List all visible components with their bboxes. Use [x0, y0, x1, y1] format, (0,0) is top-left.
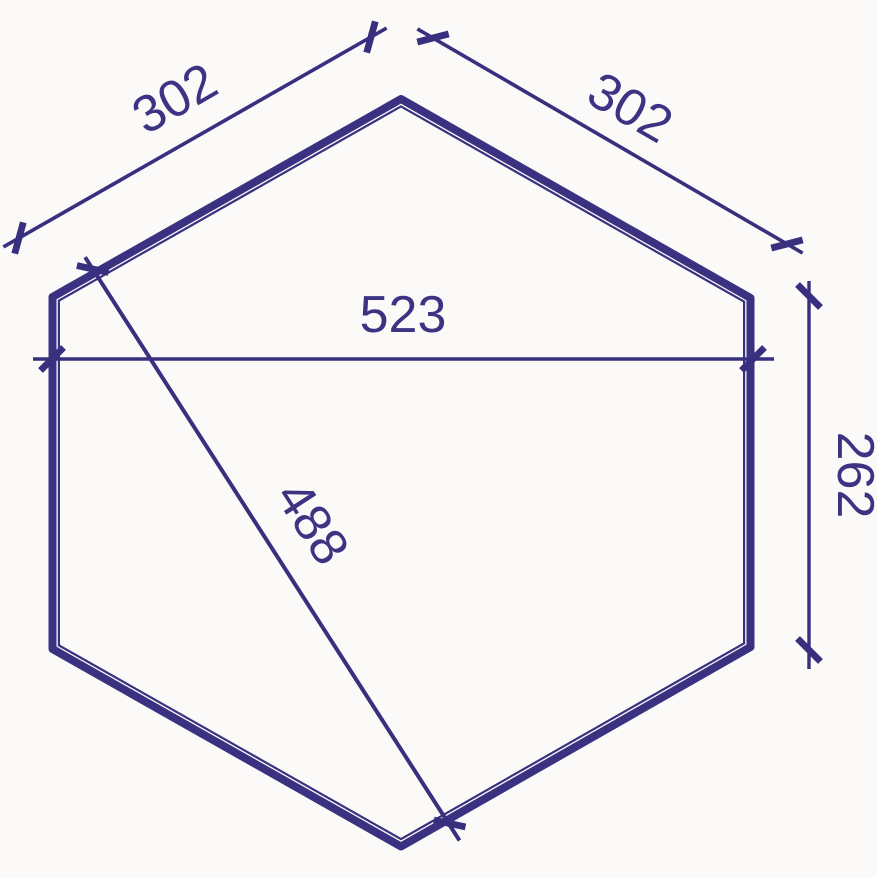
svg-text:523: 523	[360, 286, 447, 344]
svg-text:262: 262	[826, 432, 877, 519]
